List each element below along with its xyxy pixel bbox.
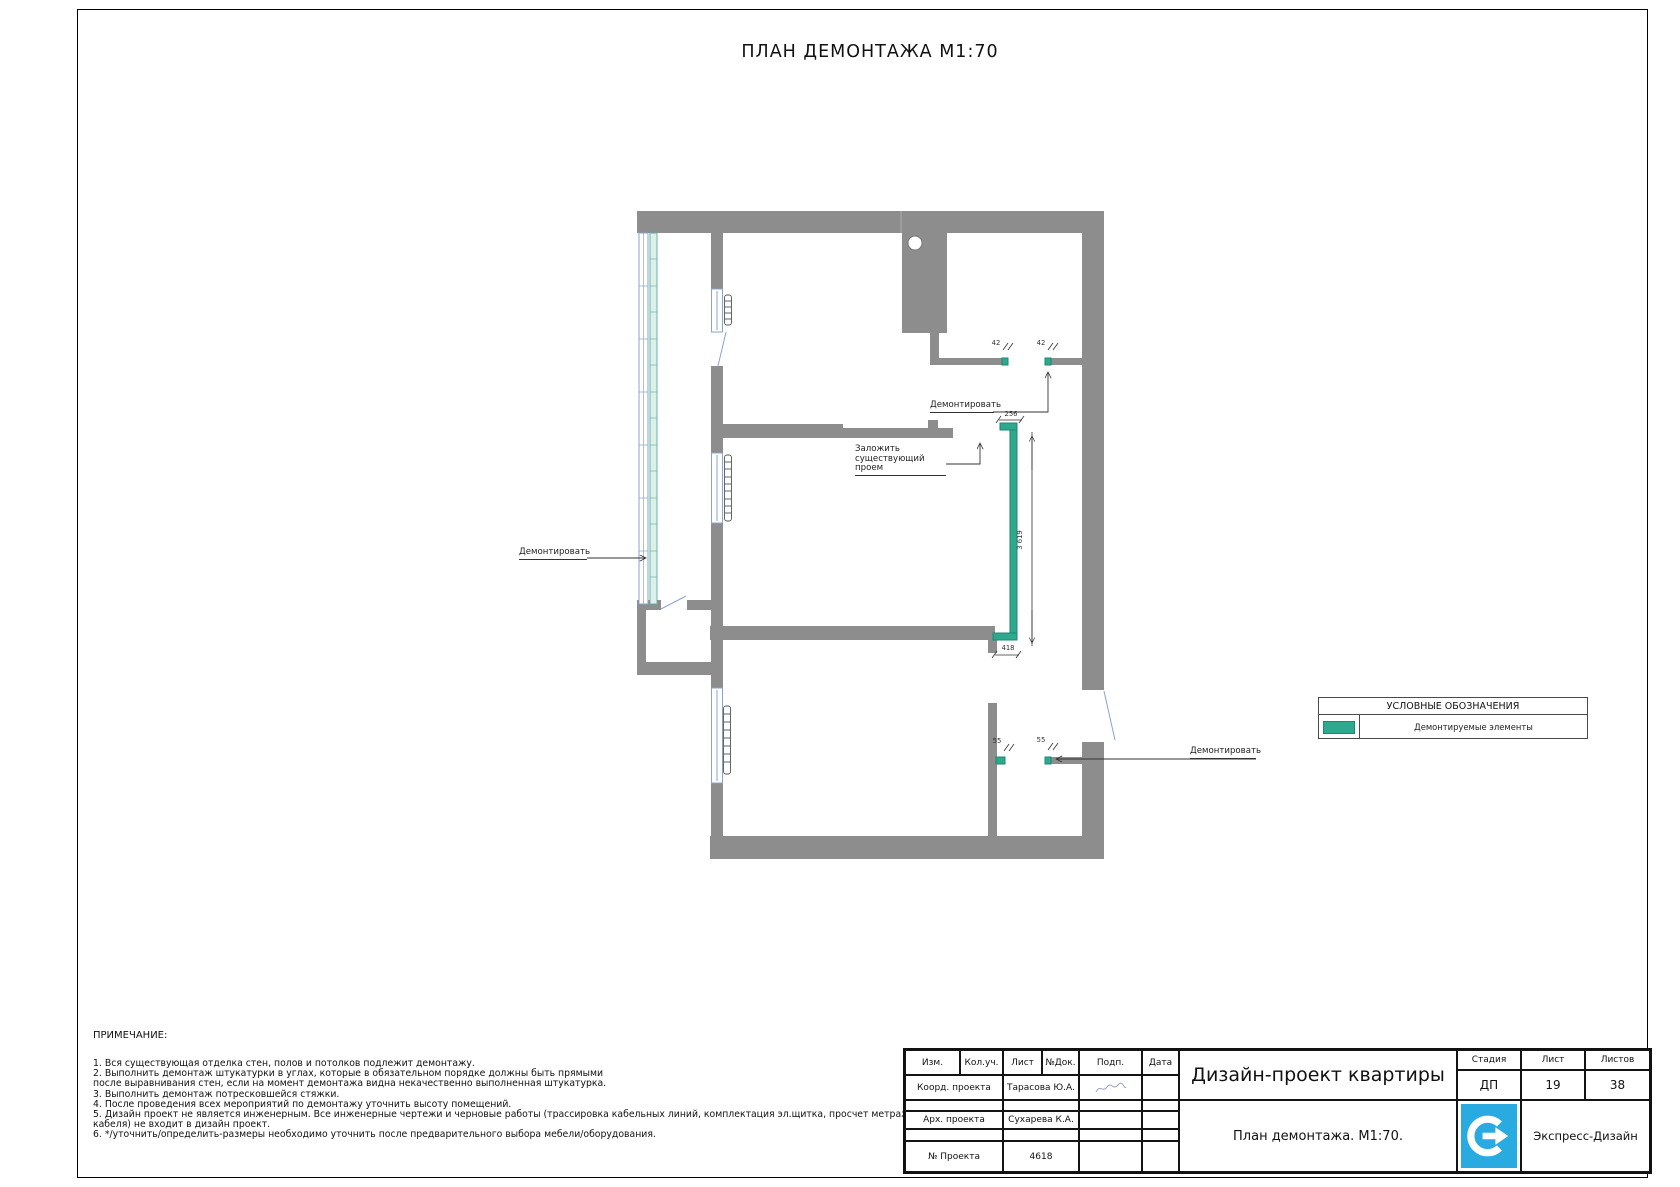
tb-empty-cell [1079,1141,1142,1172]
tb-sheet-name: План демонтажа. М1:70. [1179,1100,1457,1172]
tb-company: Экспресс-Дизайн [1521,1100,1650,1172]
tb-empty-cell [1142,1141,1179,1172]
radiators [724,295,732,774]
tb-listov-value: 38 [1585,1070,1650,1100]
legend-item-label: Демонтируемые элементы [1360,715,1587,739]
tb-col-data: Дата [1142,1050,1179,1075]
title-block: Изм. Кол.уч. Лист №Док. Подп. Дата Коорд… [903,1048,1652,1174]
tb-col-izm: Изм. [905,1050,960,1075]
tb-col-ndok: №Док. [1042,1050,1079,1075]
tb-empty-cell [1079,1129,1142,1141]
tb-project-no-value: 4618 [1003,1141,1079,1172]
legend-title: УСЛОВНЫЕ ОБОЗНАЧЕНИЯ [1319,698,1587,715]
tb-logo-cell [1457,1100,1521,1172]
label-demolish-bottom: Демонтировать [1190,747,1256,759]
demolition-color-swatch [1323,721,1355,734]
tb-empty-cell [905,1100,1003,1111]
tb-project-no-label: № Проекта [905,1141,1003,1172]
tb-empty-cell [1142,1129,1179,1141]
tb-listov-label: Листов [1585,1050,1650,1070]
tb-coord-label: Коорд. проекта [905,1075,1003,1100]
tb-empty-cell [905,1129,1003,1141]
tb-empty-cell [1142,1111,1179,1129]
tb-col-koluch: Кол.уч. [960,1050,1003,1075]
dim-256: 256 [998,410,1024,418]
floor-plan [0,0,1680,1187]
tb-empty-cell [1079,1111,1142,1129]
balcony-glazing [639,233,657,604]
dim-55-left: 55 [991,737,1003,745]
arrow-e-logo-icon [1465,1112,1513,1160]
tb-empty-cell [1003,1129,1079,1141]
note-line: 6. */уточнить/определить-размеры необход… [93,1130,905,1140]
tb-empty-cell [1142,1100,1179,1111]
drawing-sheet: ПЛАН ДЕМОНТАЖА М1:70 [0,0,1680,1187]
express-design-logo [1461,1104,1517,1168]
tb-empty-cell [1142,1075,1179,1100]
label-demolish-left: Демонтировать [519,548,587,560]
tb-col-list: Лист [1003,1050,1042,1075]
notes-block: ПРИМЕЧАНИЕ: 1. Вся существующая отделка … [93,1030,905,1141]
tb-empty-cell [1003,1100,1079,1111]
tb-project-title: Дизайн-проект квартиры [1179,1050,1457,1100]
tb-coord-value: Тарасова Ю.А. [1003,1075,1079,1100]
tb-list-label: Лист [1521,1050,1585,1070]
tb-stage-value: ДП [1457,1070,1521,1100]
notes-title: ПРИМЕЧАНИЕ: [93,1030,905,1041]
legend-swatch-cell [1319,715,1360,739]
signature-icon [1094,1081,1128,1095]
dim-418: 418 [996,644,1020,652]
dim-55-right: 55 [1035,736,1047,744]
tb-signature-cell [1079,1075,1142,1100]
dim-3619: 3 619 [1016,527,1024,553]
tb-arch-value: Сухарева К.А. [1003,1111,1079,1129]
dim-42-right: 42 [1035,339,1047,347]
tb-col-podp: Подп. [1079,1050,1142,1075]
legend: УСЛОВНЫЕ ОБОЗНАЧЕНИЯ Демонтируемые элеме… [1318,697,1588,739]
walls [637,211,1104,859]
label-demolish-top: Демонтировать [930,401,994,413]
tb-empty-cell [1079,1100,1142,1111]
label-fill-opening: Заложить существующий проем [855,445,946,476]
tb-list-value: 19 [1521,1070,1585,1100]
door-leaves [661,332,1115,740]
tb-arch-label: Арх. проекта [905,1111,1003,1129]
legend-row: Демонтируемые элементы [1319,715,1587,739]
dim-42-left: 42 [990,339,1002,347]
tb-stage-label: Стадия [1457,1050,1521,1070]
vent-shaft-circle [908,236,922,250]
